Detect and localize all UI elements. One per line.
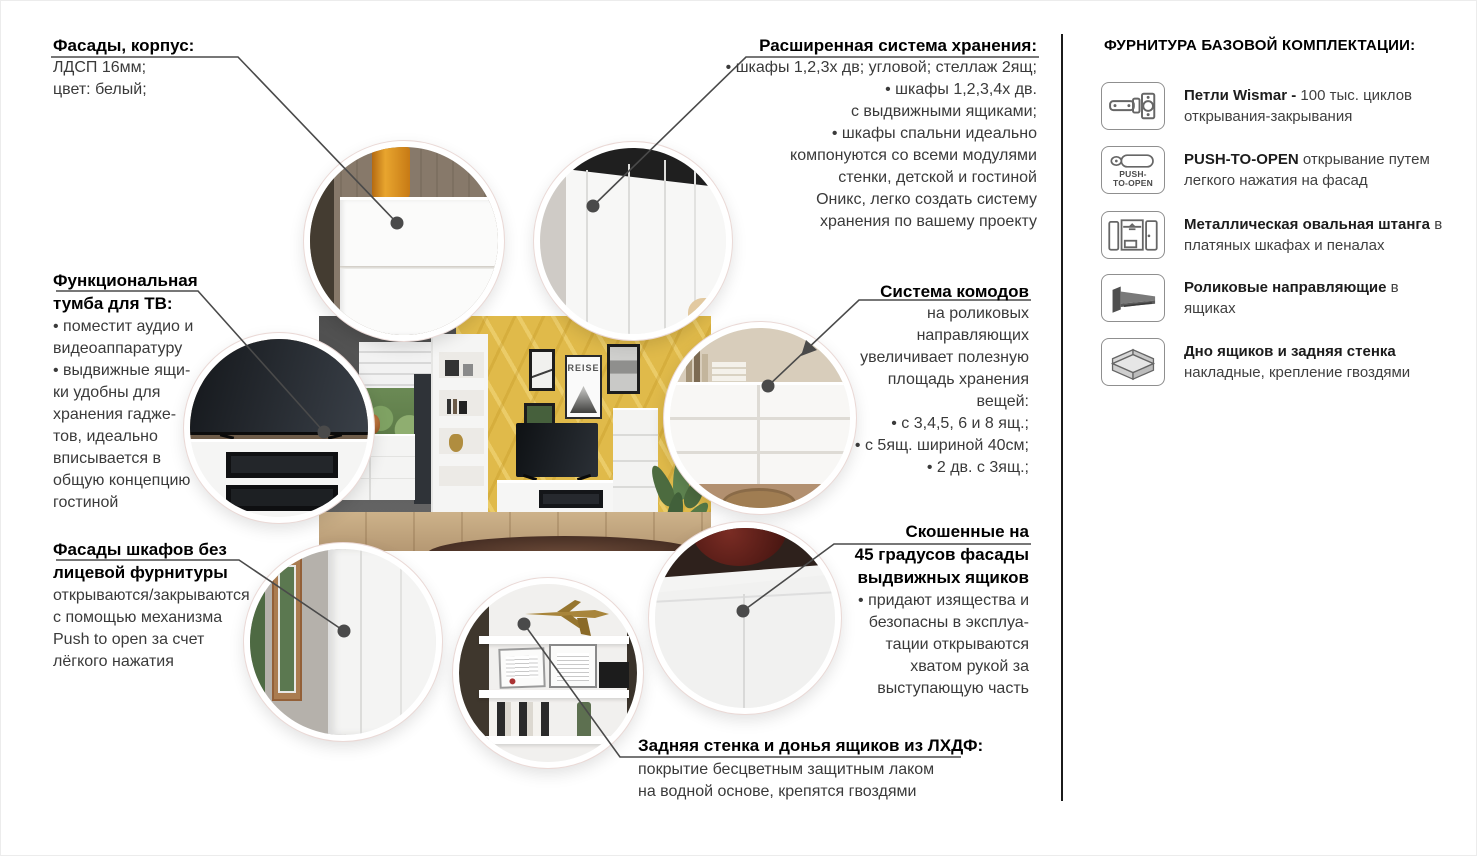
hinge-icon	[1101, 82, 1165, 130]
callout-body: покрытие бесцветным защитным лаком на во…	[638, 759, 983, 803]
callout-line: общую концепцию	[53, 470, 198, 492]
callout-title: Фасады, корпус:	[53, 34, 194, 57]
callout-angled-facades: Скошенные на 45 градусов фасады выдвижны…	[769, 520, 1029, 700]
hardware-panel-title: ФУРНИТУРА БАЗОВОЙ КОМПЛЕКТАЦИИ:	[1104, 37, 1415, 54]
living-room-photo: REISE	[319, 316, 711, 551]
callout-line: тов, идеально	[53, 426, 198, 448]
hardware-item-bold: Дно ящиков и задняя стенка	[1184, 343, 1396, 360]
callout-line: • поместит аудио и	[53, 316, 198, 338]
callout-line: • выдвижные ящи-	[53, 360, 198, 382]
door-gap	[360, 549, 362, 735]
callout-tv-stand: Функциональная тумба для ТВ: • поместит …	[53, 269, 198, 514]
hardware-item-rod: Металлическая овальная штанга в платяных…	[1101, 211, 1466, 259]
callout-drawers-system: Система комодов на роликовых направляющи…	[729, 280, 1029, 479]
callout-line: • шкафы спальни идеально	[617, 123, 1037, 145]
wardrobe-rod-icon	[1101, 211, 1165, 259]
callout-title: Расширенная система хранения:	[617, 34, 1037, 57]
callout-push-facades: Фасады шкафов без лицевой фурнитуры откр…	[53, 538, 250, 673]
callout-title: 45 градусов фасады	[769, 543, 1029, 566]
callout-line: хватом рукой за	[769, 656, 1029, 678]
callout-line: вписывается в	[53, 448, 198, 470]
book	[447, 399, 451, 414]
poster-mountain	[570, 383, 597, 413]
book	[459, 401, 467, 414]
callout-line: увеличивает полезную	[729, 347, 1029, 369]
callout-line: цвет: белый;	[53, 79, 194, 101]
shelf-slot	[439, 390, 484, 416]
callout-storage-system: Расширенная система хранения: • шкафы 1,…	[617, 34, 1037, 233]
shelf-board	[479, 690, 629, 698]
callout-line: ки удобны для	[53, 382, 198, 404]
callout-title: тумба для ТВ:	[53, 292, 198, 315]
tv-screen	[516, 423, 598, 477]
drawer-unit	[340, 197, 498, 335]
hardware-item-text: Роликовые направляющие в ящиках	[1184, 277, 1446, 319]
callout-line: покрытие бесцветным защитным лаком	[638, 759, 983, 781]
callout-line: лёгкого нажатия	[53, 651, 250, 673]
callout-facades-body: Фасады, корпус: ЛДСП 16мм; цвет: белый;	[53, 34, 194, 101]
hardware-item-rest: накладные, крепление гвоздями	[1184, 364, 1410, 381]
callout-body: открываются/закрываются с помощью механи…	[53, 585, 250, 673]
callout-line: на водной основе, крепятся гвоздями	[638, 781, 983, 803]
callout-line: выступающую часть	[769, 678, 1029, 700]
callout-body: • поместит аудио и видеоаппаратуру • выд…	[53, 316, 198, 514]
drawer-bottom-icon	[1101, 338, 1165, 386]
gold-airplane	[517, 598, 617, 638]
callout-title: Задняя стенка и донья ящиков из ЛХДФ:	[638, 734, 983, 757]
hardware-item-text: Дно ящиков и задняя стенка накладные, кр…	[1184, 341, 1446, 383]
wardrobe-door	[328, 549, 436, 735]
plant-sliver	[250, 549, 265, 735]
hardware-item-hinges: Петли Wismar - 100 тыс. циклов открывани…	[1101, 82, 1466, 130]
black-box	[599, 662, 629, 688]
white-bookshelf	[431, 334, 488, 534]
books-row	[489, 702, 549, 736]
picture-frame	[529, 349, 555, 391]
callout-line: хранения по вашему проекту	[617, 211, 1037, 233]
drawers-closeup-bubble	[304, 141, 504, 341]
callout-line: направляющих	[729, 325, 1029, 347]
callout-title: Фасады шкафов без	[53, 538, 250, 561]
roller-slide-icon	[1101, 274, 1165, 322]
callout-line: Оникс, легко создать систему	[617, 189, 1037, 211]
callout-body: • шкафы 1,2,3х дв; угловой; стеллаж 2ящ;…	[617, 57, 1037, 233]
callout-line: • шкафы 1,2,3х дв; угловой; стеллаж 2ящ;	[617, 57, 1037, 79]
hardware-item-drawer-bottom: Дно ящиков и задняя стенка накладные, кр…	[1101, 338, 1466, 386]
callout-title: Скошенные на	[769, 520, 1029, 543]
hardware-item-text: Металлическая овальная штанга в платяных…	[1184, 214, 1446, 256]
hardware-item-bold: PUSH-TO-OPEN	[1184, 151, 1299, 168]
callout-line: с помощью механизма	[53, 607, 250, 629]
shelf-slot	[439, 352, 484, 378]
callout-title: Система комодов	[729, 280, 1029, 303]
book	[686, 352, 692, 382]
callout-line: хранения гадже-	[53, 404, 198, 426]
green-bottle	[577, 702, 591, 736]
framed-picture	[278, 565, 296, 693]
callout-title: лицевой фурнитуры	[53, 561, 250, 584]
callout-body: • придают изящества и безопасны в эксплу…	[769, 590, 1029, 700]
callout-line: на роликовых	[729, 303, 1029, 325]
shelf-board	[479, 736, 629, 744]
shelf-slot	[439, 428, 484, 454]
picture-frame	[607, 344, 640, 394]
callout-body: на роликовых направляющих увеличивает по…	[729, 303, 1029, 479]
hardware-item-push-to-open: PUSH- TO-OPEN PUSH-TO-OPEN открывание пу…	[1101, 146, 1466, 194]
book	[702, 354, 708, 382]
push-to-open-icon-label: TO-OPEN	[1113, 179, 1153, 188]
poster-text: REISE	[567, 363, 600, 373]
callout-line: тации открываются	[769, 634, 1029, 656]
book	[453, 399, 457, 414]
amber-glass	[372, 147, 410, 199]
callout-line: ЛДСП 16мм;	[53, 57, 194, 79]
stand-body	[190, 439, 368, 523]
certificate-text	[506, 655, 539, 678]
gold-vase	[449, 434, 463, 452]
callout-line: площадь хранения	[729, 369, 1029, 391]
callout-line: безопасны в эксплуа-	[769, 612, 1029, 634]
infographic-canvas: REISE	[0, 0, 1477, 856]
callout-line: с выдвижными ящиками;	[617, 101, 1037, 123]
hardware-item-bold: Металлическая овальная штанга	[1184, 216, 1430, 233]
hardware-item-bold: Роликовые направляющие	[1184, 279, 1387, 296]
push-to-open-icon: PUSH- TO-OPEN	[1101, 146, 1165, 194]
callout-title: Функциональная	[53, 269, 198, 292]
callout-line: компонуются со всеми модулями	[617, 145, 1037, 167]
door-gap	[400, 549, 402, 735]
basket	[722, 488, 796, 514]
vertical-divider	[1061, 34, 1063, 801]
callout-line: • шкафы 1,2,3,4х дв.	[617, 79, 1037, 101]
drawer-gap	[340, 266, 498, 269]
callout-line: • с 5ящ. шириной 40см;	[729, 435, 1029, 457]
callout-line: • придают изящества и	[769, 590, 1029, 612]
door-closeup-bubble	[244, 543, 442, 741]
certificate	[498, 647, 545, 689]
callout-line: открываются/закрываются	[53, 585, 250, 607]
reise-poster: REISE	[565, 355, 602, 419]
book	[694, 350, 700, 382]
decor-box	[463, 364, 473, 376]
shelf-slot	[439, 466, 484, 486]
callout-title: выдвижных ящиков	[769, 566, 1029, 589]
dark-edge	[310, 147, 334, 335]
shelving-closeup-bubble	[453, 578, 643, 768]
tv-screen-zoom	[190, 339, 368, 435]
wall-sliver	[540, 148, 566, 334]
tv-stand-closeup-bubble	[184, 333, 374, 523]
callout-body: ЛДСП 16мм; цвет: белый;	[53, 57, 194, 101]
hardware-item-text: Петли Wismar - 100 тыс. циклов открывани…	[1184, 85, 1446, 127]
books	[445, 360, 459, 376]
callout-line: Push to open за счет	[53, 629, 250, 651]
hardware-item-text: PUSH-TO-OPEN открывание путем легкого на…	[1184, 149, 1446, 191]
av-receiver	[231, 456, 333, 473]
bench-shelf	[539, 490, 603, 508]
av-player	[231, 489, 333, 506]
callout-back-panel: Задняя стенка и донья ящиков из ЛХДФ: по…	[638, 734, 983, 803]
door-gap	[586, 170, 588, 334]
callout-line: • 2 дв. с 3ящ.;	[729, 457, 1029, 479]
callout-line: стенки, детской и гостиной	[617, 167, 1037, 189]
callout-line: • с 3,4,5, 6 и 8 ящ.;	[729, 413, 1029, 435]
certificate	[549, 644, 597, 688]
red-seal	[509, 678, 515, 684]
callout-line: гостиной	[53, 492, 198, 514]
drawer-gap	[743, 594, 745, 708]
wood-frame	[272, 557, 302, 701]
av-device	[543, 494, 599, 504]
callout-line: вещей:	[729, 391, 1029, 413]
shelf-opening	[226, 485, 338, 511]
callout-line: видеоаппаратуру	[53, 338, 198, 360]
shelf-opening	[226, 452, 338, 478]
hardware-item-bold: Петли Wismar -	[1184, 87, 1296, 104]
hardware-item-roller-slides: Роликовые направляющие в ящиках	[1101, 274, 1466, 322]
certificate-text	[557, 653, 589, 681]
